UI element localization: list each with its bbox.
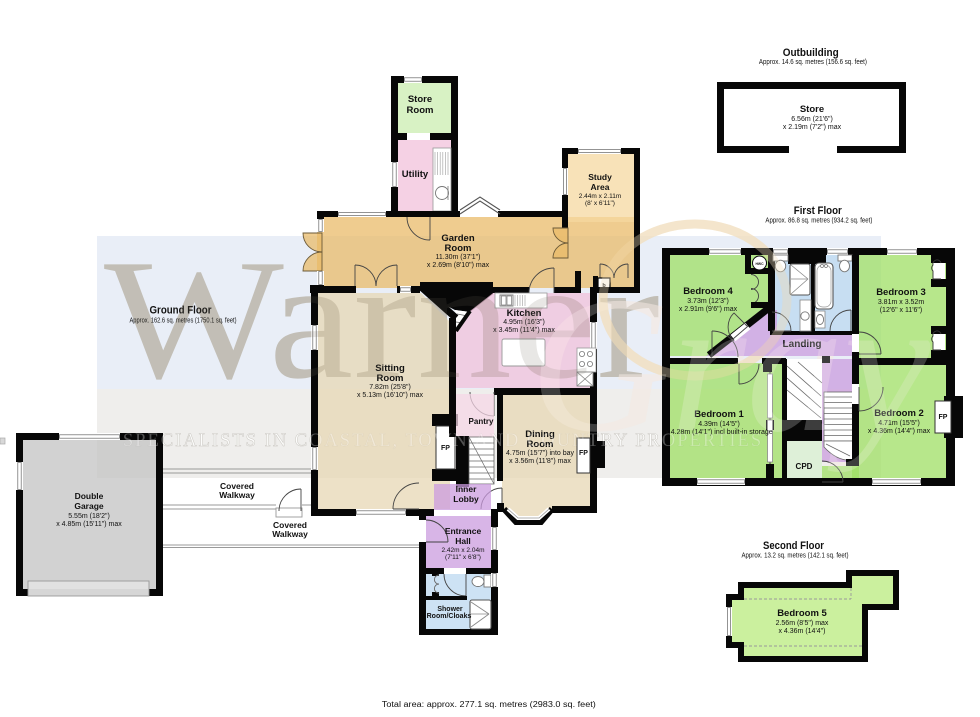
- svg-text:2.56m (8'5") max: 2.56m (8'5") max: [776, 620, 829, 627]
- svg-text:Room/Cloaks: Room/Cloaks: [427, 613, 472, 620]
- svg-text:Area: Area: [591, 182, 610, 192]
- svg-text:Inner: Inner: [456, 484, 477, 494]
- svg-text:Hall: Hall: [455, 536, 471, 546]
- svg-text:(8' x 6'11"): (8' x 6'11"): [585, 200, 615, 207]
- svg-text:Store: Store: [408, 94, 432, 105]
- svg-text:Store: Store: [800, 104, 824, 115]
- svg-text:x 2.19m (7'2") max: x 2.19m (7'2") max: [783, 124, 842, 131]
- svg-text:Room: Room: [407, 105, 434, 116]
- svg-text:Approx. 13.2 sq. metres (142.1: Approx. 13.2 sq. metres (142.1 sq. feet): [742, 553, 849, 560]
- svg-text:Pantry: Pantry: [469, 417, 494, 426]
- svg-text:Double: Double: [75, 491, 104, 501]
- svg-text:FP: FP: [939, 414, 948, 421]
- svg-text:Approx. 14.6 sq. metres (156.6: Approx. 14.6 sq. metres (156.6 sq. feet): [759, 59, 867, 66]
- svg-text:5.55m (18'2"): 5.55m (18'2"): [68, 513, 110, 520]
- svg-text:Lobby: Lobby: [453, 494, 479, 504]
- svg-text:Walkway: Walkway: [272, 529, 308, 539]
- svg-text:Shower: Shower: [437, 606, 463, 613]
- svg-text:(7'11" x 6'8"): (7'11" x 6'8"): [445, 554, 481, 561]
- svg-text:Bedroom 5: Bedroom 5: [777, 608, 827, 619]
- svg-text:Study: Study: [588, 172, 612, 182]
- svg-text:Entrance: Entrance: [445, 526, 482, 536]
- svg-text:Second Floor: Second Floor: [763, 540, 825, 552]
- svg-text:Walkway: Walkway: [219, 490, 255, 500]
- svg-text:6.56m (21'6"): 6.56m (21'6"): [791, 116, 833, 123]
- svg-text:2.42m x 2.04m: 2.42m x 2.04m: [442, 547, 485, 554]
- svg-text:x 4.85m (15'11") max: x 4.85m (15'11") max: [56, 521, 122, 528]
- svg-text:Garage: Garage: [74, 501, 104, 511]
- svg-text:Approx. 86.8 sq. metres (934.2: Approx. 86.8 sq. metres (934.2 sq. feet): [765, 218, 872, 225]
- svg-text:Outbuilding: Outbuilding: [783, 47, 839, 59]
- svg-text:First Floor: First Floor: [794, 205, 843, 217]
- svg-text:2.44m x 2.11m: 2.44m x 2.11m: [579, 193, 622, 200]
- svg-text:x 4.36m (14'4"): x 4.36m (14'4"): [778, 628, 825, 635]
- svg-text:Utility: Utility: [402, 169, 429, 180]
- svg-text:SPECIALISTS IN COASTAL, TOWN A: SPECIALISTS IN COASTAL, TOWN AND COUNTRY…: [123, 431, 763, 451]
- svg-text:Total area: approx. 277.1 sq.: Total area: approx. 277.1 sq. metres (29…: [382, 700, 596, 709]
